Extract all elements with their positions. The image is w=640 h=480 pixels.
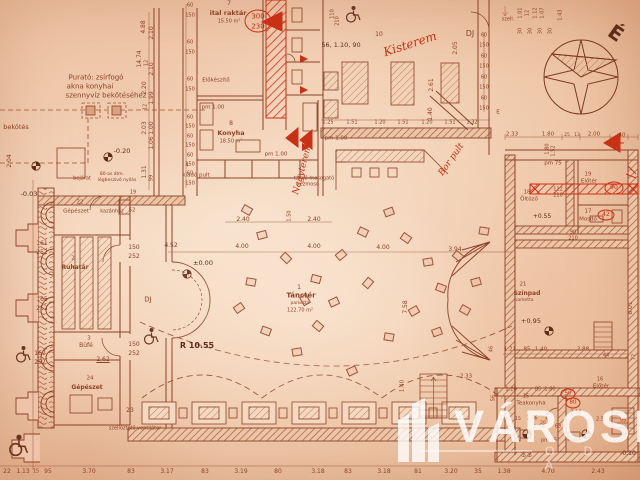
plan-annotation: 1.40 (400, 380, 406, 392)
plan-annotation: 24 (87, 376, 94, 382)
plan-annotation: 252 (34, 360, 45, 366)
watermark-rule (420, 450, 532, 452)
plan-annotation: 18.50 m² (220, 140, 243, 145)
watermark-title: VÁROSI (454, 404, 640, 449)
plan-annotation: 80 (274, 469, 282, 475)
plan-annotation: kiadó pult (182, 173, 209, 179)
plan-annotation: 8 (229, 121, 233, 127)
plan-annotation: 1.07 (541, 7, 546, 18)
plan-annotation: 1.51 (397, 121, 408, 126)
plan-annotation: 2,62 (96, 357, 109, 363)
plan-annotation: 21 (520, 282, 527, 288)
chair-symbol (280, 252, 293, 265)
chair-symbol (335, 249, 348, 262)
plan-annotation: 83 (344, 469, 352, 475)
plan-annotation: Büfé (79, 343, 93, 349)
plan-annotation: 2.33 (506, 132, 518, 138)
plan-annotation: 150 (185, 125, 195, 130)
plan-annotation: Ruhatár (61, 265, 88, 271)
plan-annotation: 210 (568, 237, 578, 242)
plan-annotation: 44 (603, 354, 609, 359)
plan-annotation: 3.17 (160, 469, 173, 475)
plan-annotation: 1.13 (16, 469, 29, 475)
plan-annotation: 1.01 (519, 7, 524, 18)
plan-annotation: 1.38 (497, 469, 510, 475)
plan-annotation: 10 (375, 32, 383, 38)
plan-annotation: 4.52 (164, 243, 177, 249)
plan-annotation: Előtér (593, 384, 609, 390)
plan-annotation: 2.10 (149, 26, 155, 39)
plan-annotation: 1.20 (374, 121, 385, 126)
plan-annotation: 150 (479, 65, 489, 70)
chair-symbol (470, 277, 482, 287)
plan-annotation: 252 (36, 306, 47, 312)
plan-annotation: 22 (77, 200, 84, 206)
level-mark: ±0.00 (193, 260, 213, 267)
plan-annotation: 4.00 (376, 245, 389, 251)
plan-annotation: kazánház (100, 210, 124, 215)
plan-annotation: 252 (128, 254, 139, 260)
plan-annotation: 22 (3, 469, 11, 475)
plan-annotation: 85 (535, 388, 541, 393)
handwritten-room-name: Kisterem (382, 30, 438, 58)
plan-annotation: szell. (502, 18, 515, 23)
plan-annotation: 99 (150, 175, 155, 181)
plan-annotation: 165 (36, 297, 47, 303)
plan-annotation: 23 (126, 408, 134, 414)
chair-symbol (312, 320, 325, 333)
handwritten-label: Bor pult (438, 142, 467, 178)
chair-symbol (233, 302, 246, 314)
chair-symbol (310, 274, 322, 284)
plan-annotation: 13 (574, 134, 580, 139)
radius-label: R 10.55 (180, 342, 214, 350)
plan-annotation: DJ (144, 297, 151, 304)
chair-symbol (241, 204, 254, 216)
plan-annotation: parketta (515, 299, 534, 304)
plan-annotation: 2.40 (307, 217, 320, 223)
plan-annotation: 2.61 (429, 78, 435, 91)
plan-annotation: 150 (479, 86, 489, 91)
plan-annotation: 1.52 (552, 145, 557, 156)
plan-annotation: 80-as átm. (100, 173, 124, 178)
plan-annotation: 83 (201, 469, 209, 475)
chair-symbol (291, 347, 302, 357)
plan-annotation: Mosdó (579, 217, 597, 223)
plan-annotation: 3.20 (444, 469, 457, 475)
plan-annotation: 60 (481, 76, 487, 81)
plan-annotation: 19 (130, 191, 136, 196)
plan-annotation: 150 (185, 182, 195, 187)
note-line: akna konyhai (67, 84, 114, 91)
note-line: szennyvíz bekötéséhez (66, 93, 147, 100)
plan-annotation: 2 (71, 256, 75, 262)
plan-annotation: 1.43 (559, 9, 564, 20)
plan-annotation: 1.21 (504, 347, 516, 353)
chair-symbol (362, 277, 375, 290)
level-mark: -0.03 (21, 191, 38, 198)
plan-annotation: 30 (539, 28, 544, 34)
plan-annotation: 30 (519, 28, 524, 34)
plan-annotation: Öltöző (520, 197, 538, 203)
plan-annotation: 14.74 (137, 50, 143, 67)
plan-annotation: légbeszívó nyílás (98, 179, 136, 184)
north-label: É (605, 21, 628, 45)
plan-annotation: szellőztető ventilátor (109, 427, 162, 432)
plan-annotation: 81 (414, 469, 422, 475)
plan-annotation: 150 (185, 51, 195, 56)
plan-annotation: 60 (481, 55, 487, 60)
plan-annotation: 167 (34, 351, 45, 357)
chair-symbol (435, 283, 447, 294)
plan-annotation: DJ (466, 30, 475, 38)
plan-annotation: Gépészet (71, 385, 102, 391)
plan-annotation: pm 75 (544, 161, 562, 167)
plan-annotation: 1.32 (466, 121, 477, 126)
plan-annotation: 161 (36, 241, 47, 247)
plan-annotation: 230 (251, 24, 264, 31)
chair-symbol (383, 332, 394, 342)
plan-annotation: 1.80 (542, 132, 554, 138)
plan-annotation: 17 (585, 209, 592, 215)
plan-annotation: 30 (529, 28, 534, 34)
plan-annotation: 1.99 (149, 91, 155, 104)
plan-annotation: pm 1.00 (202, 105, 225, 111)
plan-annotation: pm 1.00 (325, 136, 348, 142)
plan-annotation: 3.19 (234, 469, 247, 475)
plan-annotation: 12 (144, 104, 149, 110)
level-mark: -0.20 (114, 148, 131, 155)
plan-annotation: pm 1.00 (265, 152, 288, 158)
plan-annotation: 2.88 (577, 347, 589, 353)
plan-annotation: 19 (585, 172, 592, 178)
floor-plan-sheet: Purató: zsírfogóakna konyhaiszennyvíz be… (0, 0, 640, 480)
plan-annotation: Előkészítő (202, 78, 230, 84)
plan-annotation: 52 (129, 208, 136, 214)
plan-annotation: 60 (481, 97, 487, 102)
plan-annotation: ital raktár (210, 10, 247, 17)
plan-annotation: E (496, 110, 499, 116)
plan-annotation: 95 (44, 469, 52, 475)
plan-annotation: 150 (128, 245, 139, 251)
handwritten-room-name: Nagyterem (292, 144, 314, 196)
plan-annotation: 12 (526, 10, 531, 16)
plan-annotation: 4.88 (141, 20, 147, 33)
plan-annotation: 8.01 (628, 301, 634, 314)
plan-annotation: Előtér (581, 179, 597, 185)
plan-annotation: bejárat (73, 177, 91, 182)
plan-annotation: 150 (185, 144, 195, 149)
plan-annotation: 77 (633, 354, 638, 360)
plan-annotation: 150 (479, 107, 489, 112)
plan-annotation: 150 (185, 88, 195, 93)
plan-annotation: 1 (297, 285, 301, 291)
plan-annotation: 35 (474, 469, 482, 475)
plan-annotation: 2.00 (588, 132, 600, 138)
plan-annotation: 60 (187, 135, 193, 140)
plan-annotation: 150 (185, 14, 195, 19)
plan-annotation: 25 (564, 134, 570, 139)
plan-annotation: 50 (565, 391, 572, 397)
plan-annotation: 300 (251, 14, 264, 21)
plan-annotation: 252 (128, 351, 139, 357)
plan-annotation: 2.04 (7, 154, 13, 167)
plan-annotation: 1.06 (149, 136, 155, 149)
plan-annotation: 7 (227, 1, 231, 7)
plan-annotation: 1.40 (535, 347, 547, 353)
plan-annotation: 210 (336, 16, 341, 26)
chair-symbol (431, 327, 443, 338)
plan-annotation: 1.26 (505, 388, 516, 393)
plan-annotation: 16 (597, 378, 603, 383)
plan-annotation: 2.10 (149, 62, 155, 75)
plan-annotation: 1.25 (322, 121, 333, 126)
plan-annotation: 1.50 (288, 210, 293, 221)
plan-annotation: 60 (187, 4, 193, 9)
plan-annotation: 1.12 (534, 7, 539, 18)
plan-annotation: 60 (187, 154, 193, 159)
watermark-building-icon (398, 398, 440, 462)
plan-annotation: Gépészet (63, 209, 89, 215)
chair-symbol (400, 232, 413, 244)
chair-symbol (346, 365, 358, 376)
plan-annotation: 2.40 (236, 217, 249, 223)
plan-annotation: 122.70 m² (287, 309, 313, 314)
plan-annotation: 1.80 (544, 388, 555, 393)
plan-annotation: 150 (479, 44, 489, 49)
level-mark: +0.95 (521, 318, 541, 325)
plan-annotation: 4.00 (307, 244, 320, 250)
plan-annotation: 18 (524, 190, 531, 196)
plan-annotation: 4 (185, 163, 189, 169)
plan-annotation: 3.70 (82, 469, 95, 475)
plan-annotation: 85 (524, 347, 531, 353)
plan-annotation: 40 (619, 133, 626, 139)
chair-symbol (459, 304, 472, 316)
note-line: Purató: zsírfogó (69, 75, 124, 82)
plan-annotation: 150 (128, 342, 139, 348)
plan-annotation: 1.51 (444, 121, 455, 126)
plan-annotation: 3.18 (311, 469, 324, 475)
plan-annotation: 60 (187, 78, 193, 83)
chair-symbol (422, 257, 433, 267)
plan-annotation: 30 (549, 28, 554, 34)
chair-symbol (260, 326, 272, 337)
note-line: bekötés (3, 124, 29, 131)
plan-annotation: 15.50 m² (218, 20, 241, 25)
plan-annotation: 56, 1.10, 90 (321, 42, 360, 49)
plan-annotation: 83 (127, 469, 135, 475)
plan-annotation: 1.31 (142, 165, 148, 178)
chair-symbol (478, 226, 489, 236)
level-mark: +0.55 (533, 214, 551, 220)
plan-annotation: 46 (490, 346, 495, 352)
plan-annotation: 60 (481, 34, 487, 39)
chair-symbol (408, 305, 421, 317)
plan-annotation: 42 (602, 212, 610, 218)
plan-annotation: 3 (87, 336, 91, 342)
plan-annotation: 1.20 (421, 121, 432, 126)
watermark-caption: O D A (545, 444, 640, 472)
plan-annotation: 60 (187, 41, 193, 46)
plan-annotation: 2.05 (453, 41, 459, 54)
plan-annotation: 60 (187, 116, 193, 121)
plan-annotation: 90 (610, 185, 618, 191)
plan-annotation: Konyha (217, 130, 244, 137)
chair-symbol (357, 226, 369, 237)
plan-annotation: 210 (553, 194, 563, 199)
plan-annotation: 3.18 (377, 469, 390, 475)
chair-symbol (256, 230, 268, 240)
plan-annotation: 15 (33, 470, 39, 475)
plan-annotation: 1.51 (346, 121, 357, 126)
chair-symbol (245, 277, 256, 287)
plan-annotation: 2.33 (460, 374, 472, 380)
plan-annotation: 4.00 (235, 244, 248, 250)
plan-annotation: 252 (36, 250, 47, 256)
chair-symbol (383, 207, 395, 218)
chair-symbol (452, 250, 465, 263)
plan-annotation: 1.00 (149, 121, 155, 134)
chair-symbol (328, 296, 340, 307)
plan-annotation: Színpad (514, 291, 541, 297)
